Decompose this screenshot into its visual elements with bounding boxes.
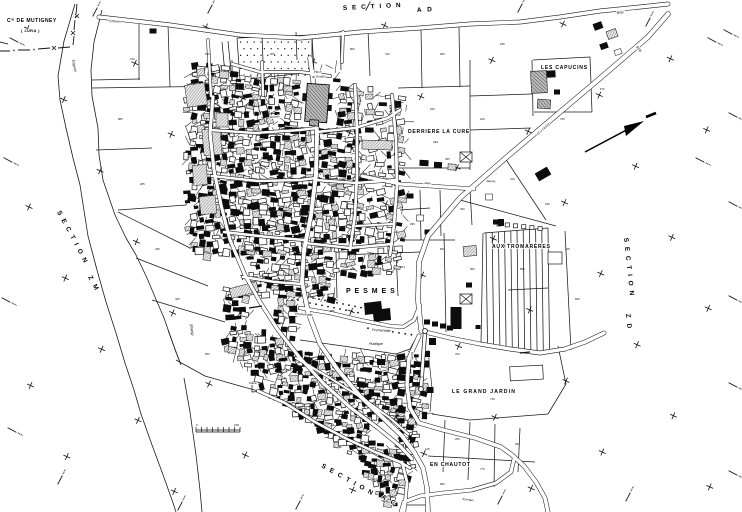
svg-text:( JURA ): ( JURA ) bbox=[21, 28, 40, 33]
svg-text:Chemin: Chemin bbox=[109, 19, 121, 24]
svg-text:770: 770 bbox=[480, 467, 485, 471]
svg-text:450: 450 bbox=[460, 207, 465, 211]
svg-text:100: 100 bbox=[234, 423, 239, 427]
svg-text:LE GRAND JARDIN: LE GRAND JARDIN bbox=[452, 389, 516, 395]
svg-text:740: 740 bbox=[418, 375, 423, 379]
svg-text:830: 830 bbox=[440, 247, 445, 251]
svg-text:886: 886 bbox=[118, 117, 123, 121]
svg-text:P E S M E S: P E S M E S bbox=[346, 288, 396, 295]
svg-text:Grande: Grande bbox=[270, 114, 281, 119]
svg-text:Place: Place bbox=[249, 381, 257, 385]
svg-text:220: 220 bbox=[480, 117, 485, 121]
svg-text:144: 144 bbox=[372, 477, 377, 481]
svg-text:Jaurès: Jaurès bbox=[486, 179, 496, 183]
svg-text:185: 185 bbox=[500, 42, 505, 46]
svg-text:Publique: Publique bbox=[369, 342, 383, 346]
svg-text:550: 550 bbox=[205, 352, 210, 356]
svg-text:690: 690 bbox=[515, 442, 520, 446]
svg-text:650: 650 bbox=[205, 52, 210, 56]
svg-text:305: 305 bbox=[270, 52, 275, 56]
svg-text:du Portail: du Portail bbox=[312, 74, 325, 79]
svg-text:EN CHAUTOT: EN CHAUTOT bbox=[430, 462, 471, 468]
svg-text:730: 730 bbox=[490, 397, 495, 401]
svg-text:DERRIERE LA CURE: DERRIERE LA CURE bbox=[408, 129, 470, 135]
svg-text:866: 866 bbox=[330, 309, 335, 313]
svg-text:780: 780 bbox=[560, 117, 565, 121]
svg-text:685: 685 bbox=[440, 482, 445, 486]
svg-text:695: 695 bbox=[440, 52, 445, 56]
svg-text:500: 500 bbox=[470, 267, 475, 271]
svg-text:Jean: Jean bbox=[424, 181, 431, 185]
svg-text:700: 700 bbox=[455, 352, 460, 356]
svg-text:205: 205 bbox=[455, 437, 460, 441]
svg-text:Place: Place bbox=[314, 70, 322, 74]
svg-text:LES CAPUCINS: LES CAPUCINS bbox=[541, 65, 588, 71]
svg-text:433: 433 bbox=[433, 140, 438, 144]
svg-text:540: 540 bbox=[430, 107, 435, 111]
svg-text:825: 825 bbox=[575, 297, 580, 301]
svg-text:C: C bbox=[7, 18, 11, 24]
svg-text:285: 285 bbox=[365, 307, 370, 311]
svg-text:495: 495 bbox=[445, 157, 450, 161]
svg-text:670: 670 bbox=[600, 87, 605, 91]
svg-text:ie: ie bbox=[12, 18, 15, 22]
svg-text:800: 800 bbox=[350, 47, 355, 51]
svg-text:784: 784 bbox=[400, 265, 405, 269]
svg-text:410: 410 bbox=[510, 177, 515, 181]
svg-text:180: 180 bbox=[545, 202, 550, 206]
svg-text:A D: A D bbox=[417, 6, 434, 14]
svg-text:850: 850 bbox=[520, 267, 525, 271]
svg-text:190: 190 bbox=[130, 57, 135, 61]
svg-text:Route: Route bbox=[410, 352, 415, 361]
svg-text:425: 425 bbox=[175, 297, 180, 301]
svg-text:105: 105 bbox=[565, 247, 570, 251]
svg-text:395: 395 bbox=[430, 342, 435, 346]
svg-text:285: 285 bbox=[140, 182, 145, 186]
svg-text:435: 435 bbox=[155, 247, 160, 251]
svg-text:125: 125 bbox=[425, 447, 430, 451]
svg-text:295: 295 bbox=[410, 222, 415, 226]
svg-text:DE MUTIGNEY: DE MUTIGNEY bbox=[17, 18, 57, 24]
svg-text:460: 460 bbox=[350, 267, 355, 271]
svg-text:310: 310 bbox=[385, 52, 390, 56]
svg-text:AUX TROMARÈRES: AUX TROMARÈRES bbox=[492, 242, 551, 250]
